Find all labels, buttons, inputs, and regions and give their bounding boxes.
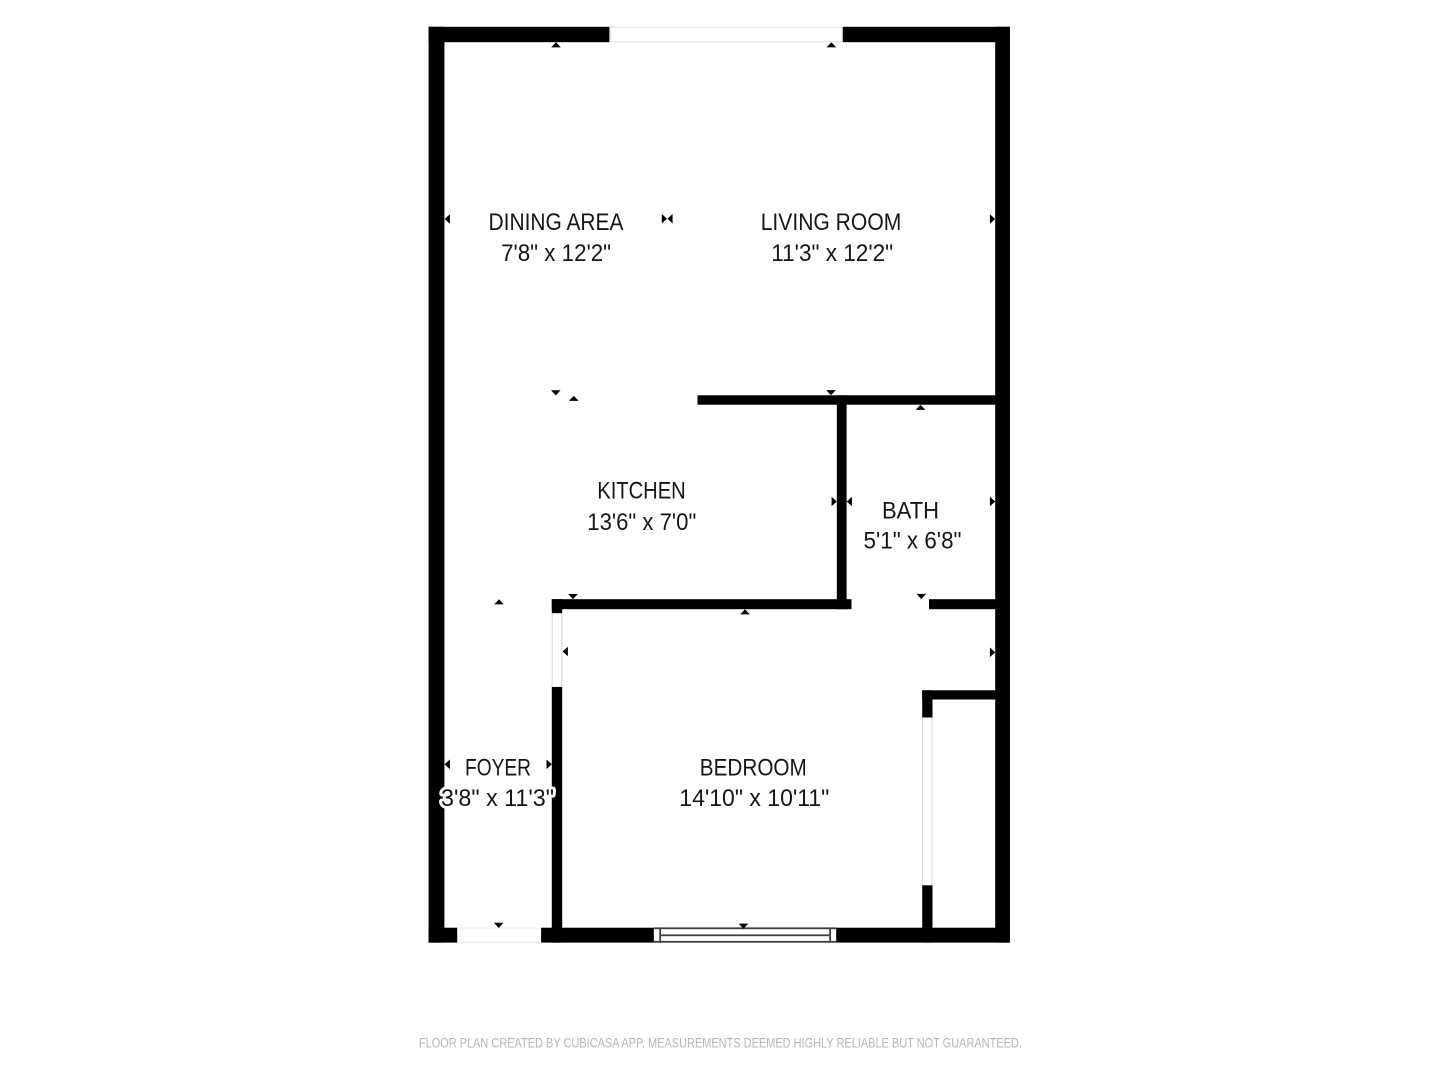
svg-text:5'1" x 6'8": 5'1" x 6'8"	[864, 527, 962, 554]
svg-text:BEDROOM: BEDROOM	[700, 755, 807, 782]
svg-text:DINING AREA: DINING AREA	[489, 209, 625, 236]
svg-text:3'8" x 11'3": 3'8" x 11'3"	[441, 785, 554, 812]
svg-text:13'6" x 7'0": 13'6" x 7'0"	[587, 509, 696, 536]
svg-text:LIVING ROOM: LIVING ROOM	[761, 209, 902, 236]
svg-text:BATH: BATH	[882, 498, 939, 525]
svg-text:FOYER: FOYER	[465, 755, 531, 782]
svg-text:7'8" x 12'2": 7'8" x 12'2"	[501, 240, 611, 267]
svg-text:11'3" x 12'2": 11'3" x 12'2"	[771, 240, 893, 267]
svg-text:FLOOR PLAN CREATED BY CUBICASA: FLOOR PLAN CREATED BY CUBICASA APP. MEAS…	[419, 1036, 1022, 1051]
svg-text:14'10" x 10'11": 14'10" x 10'11"	[679, 785, 829, 812]
svg-text:KITCHEN: KITCHEN	[597, 477, 686, 504]
